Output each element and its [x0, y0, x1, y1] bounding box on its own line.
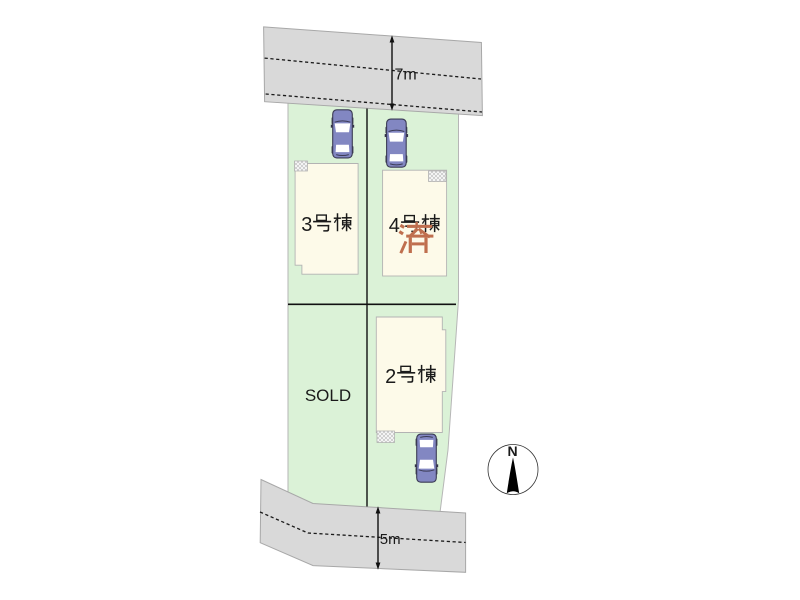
svg-text:7m: 7m	[395, 67, 417, 84]
svg-text:5m: 5m	[380, 531, 401, 548]
svg-text:2: 2	[385, 366, 396, 388]
svg-text:3: 3	[301, 214, 312, 236]
svg-text:SOLD: SOLD	[305, 386, 351, 405]
svg-text:4: 4	[389, 215, 400, 237]
svg-text:N: N	[507, 443, 517, 459]
